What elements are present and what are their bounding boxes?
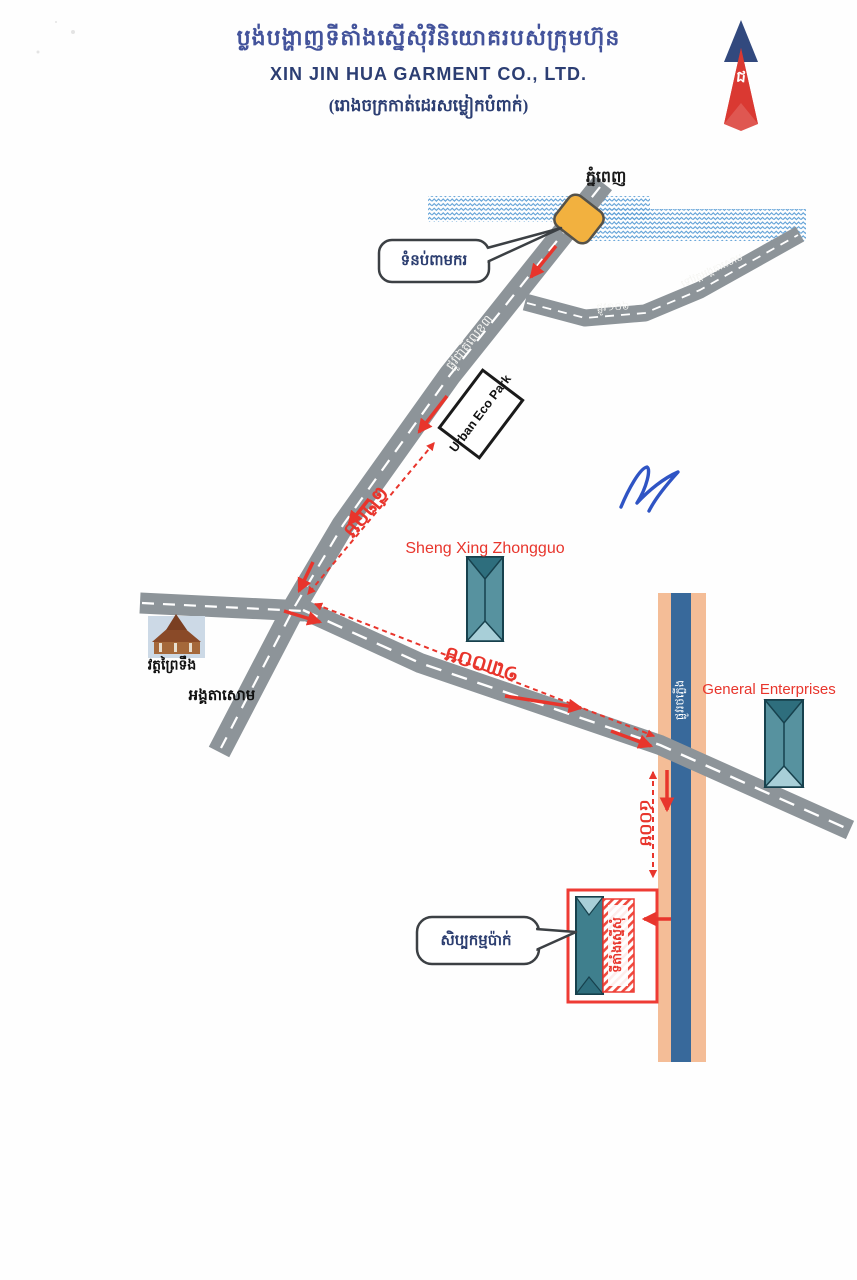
page-title-english: XIN JIN HUA GARMENT CO., LTD. bbox=[0, 64, 857, 85]
document-header: ប្លង់បង្ហាញទីតាំងស្នើសុំវិនិយោគរបស់ក្រុម… bbox=[0, 0, 857, 120]
proposed-site-label: ទីតាំងស្នើសុំ bbox=[611, 917, 625, 973]
village-label-angk-ta-saom: អង្គតាសោម bbox=[189, 688, 256, 705]
building-icon-factory bbox=[576, 897, 603, 994]
roads bbox=[140, 183, 850, 830]
page-subtitle-khmer: (រោងចក្រកាត់ដេរសម្លៀកបំពាក់) bbox=[0, 95, 857, 120]
temple-image bbox=[148, 614, 205, 658]
map-canvas bbox=[0, 0, 857, 1280]
page-title-khmer: ប្លង់បង្ហាញទីតាំងស្នើសុំវិនិយោគរបស់ក្រុម… bbox=[0, 24, 857, 56]
temple-label: វត្តព្រៃទឹង bbox=[148, 657, 197, 672]
factory-general-enterprises-label: General Enterprises bbox=[702, 682, 835, 699]
river-waves bbox=[428, 196, 806, 241]
compass-north-glyph: ជ bbox=[735, 69, 746, 86]
dam-callout-label: ទំនប់ពាមករ bbox=[401, 253, 468, 270]
city-label-phnom-penh: ភ្នំពេញ bbox=[586, 169, 627, 187]
building-icon-general-enterprises bbox=[765, 700, 803, 787]
pen-mark bbox=[621, 467, 678, 511]
workshop-callout-label: សិប្បកម្មប៉ាក់ bbox=[440, 933, 511, 950]
map-document: ប្លង់បង្ហាញទីតាំងស្នើសុំវិនិយោគរបស់ក្រុម… bbox=[0, 0, 857, 1280]
railway-band bbox=[658, 593, 706, 1062]
distance-400m-label: ៤០០ម bbox=[636, 800, 655, 847]
factory-sheng-xing-label: Sheng Xing Zhongguo bbox=[405, 540, 564, 558]
railway-label: ផ្លូវរថភ្លើង bbox=[675, 680, 688, 720]
building-icon-sheng-xing bbox=[467, 557, 503, 641]
street-106-label: ផ្លូវ១០៦ bbox=[596, 301, 629, 314]
